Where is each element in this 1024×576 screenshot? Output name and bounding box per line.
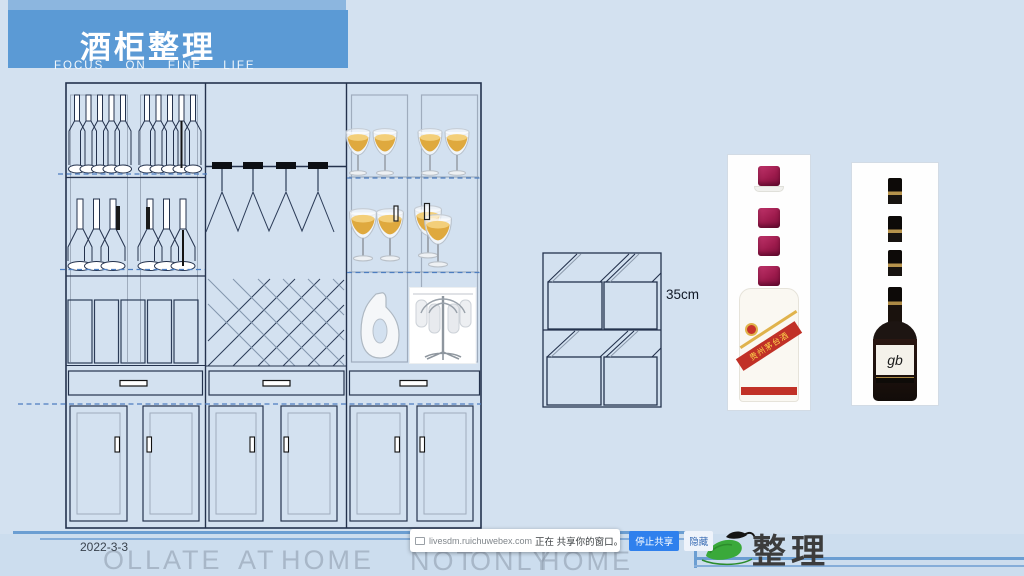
share-source-text: livesdm.ruichuwebex.com bbox=[429, 536, 532, 546]
wine-bottle-shoulder bbox=[873, 321, 917, 341]
glass-hanger-stand bbox=[410, 288, 477, 364]
wine-bottle-neck bbox=[888, 287, 902, 325]
wine-product-image: gb bbox=[852, 163, 938, 405]
decanter bbox=[361, 293, 399, 358]
dimension-label: 35cm bbox=[666, 287, 699, 302]
share-message-text: 正在 共享你的窗口。 bbox=[535, 534, 623, 548]
slide-canvas: OLLATE AT HOME NOT ONLY HOME 酒柜整理 FOCUS … bbox=[0, 0, 1024, 576]
wine-glass-row-bottom bbox=[350, 204, 452, 267]
stop-sharing-button[interactable]: 停止共享 bbox=[629, 531, 679, 551]
slide-date: 2022-3-3 bbox=[80, 540, 128, 554]
glass-display-section bbox=[346, 95, 479, 364]
hide-button[interactable]: 隐藏 bbox=[684, 531, 713, 551]
moutai-cap-base bbox=[754, 186, 784, 192]
wine-cap bbox=[888, 250, 902, 276]
screen-share-bar: livesdm.ruichuwebex.com 正在 共享你的窗口。 停止共享 … bbox=[410, 529, 620, 552]
screen-share-icon bbox=[415, 537, 425, 545]
drawer-row bbox=[69, 371, 480, 395]
wine-cap bbox=[888, 178, 902, 204]
wine-label-text: gb bbox=[887, 352, 903, 368]
logo-text: 整理 bbox=[752, 524, 830, 573]
cabinet-doors bbox=[70, 406, 473, 521]
moutai-cap bbox=[758, 236, 780, 256]
moutai-emblem bbox=[745, 323, 758, 336]
moutai-cap bbox=[758, 208, 780, 228]
moutai-label-bottom-strip bbox=[741, 387, 797, 395]
stemware-hanging-rack bbox=[206, 162, 346, 232]
wine-cap bbox=[888, 216, 902, 242]
wine-bottle-label: gb bbox=[876, 345, 914, 375]
moutai-cap bbox=[758, 266, 780, 286]
bottle-rack-section bbox=[66, 95, 205, 366]
diamond-wine-lattice bbox=[206, 279, 346, 366]
moutai-cap bbox=[758, 166, 780, 186]
moutai-product-image: 贵州茅台酒 bbox=[728, 155, 810, 410]
wine-label-band bbox=[876, 377, 914, 383]
storage-box-module bbox=[543, 253, 661, 407]
